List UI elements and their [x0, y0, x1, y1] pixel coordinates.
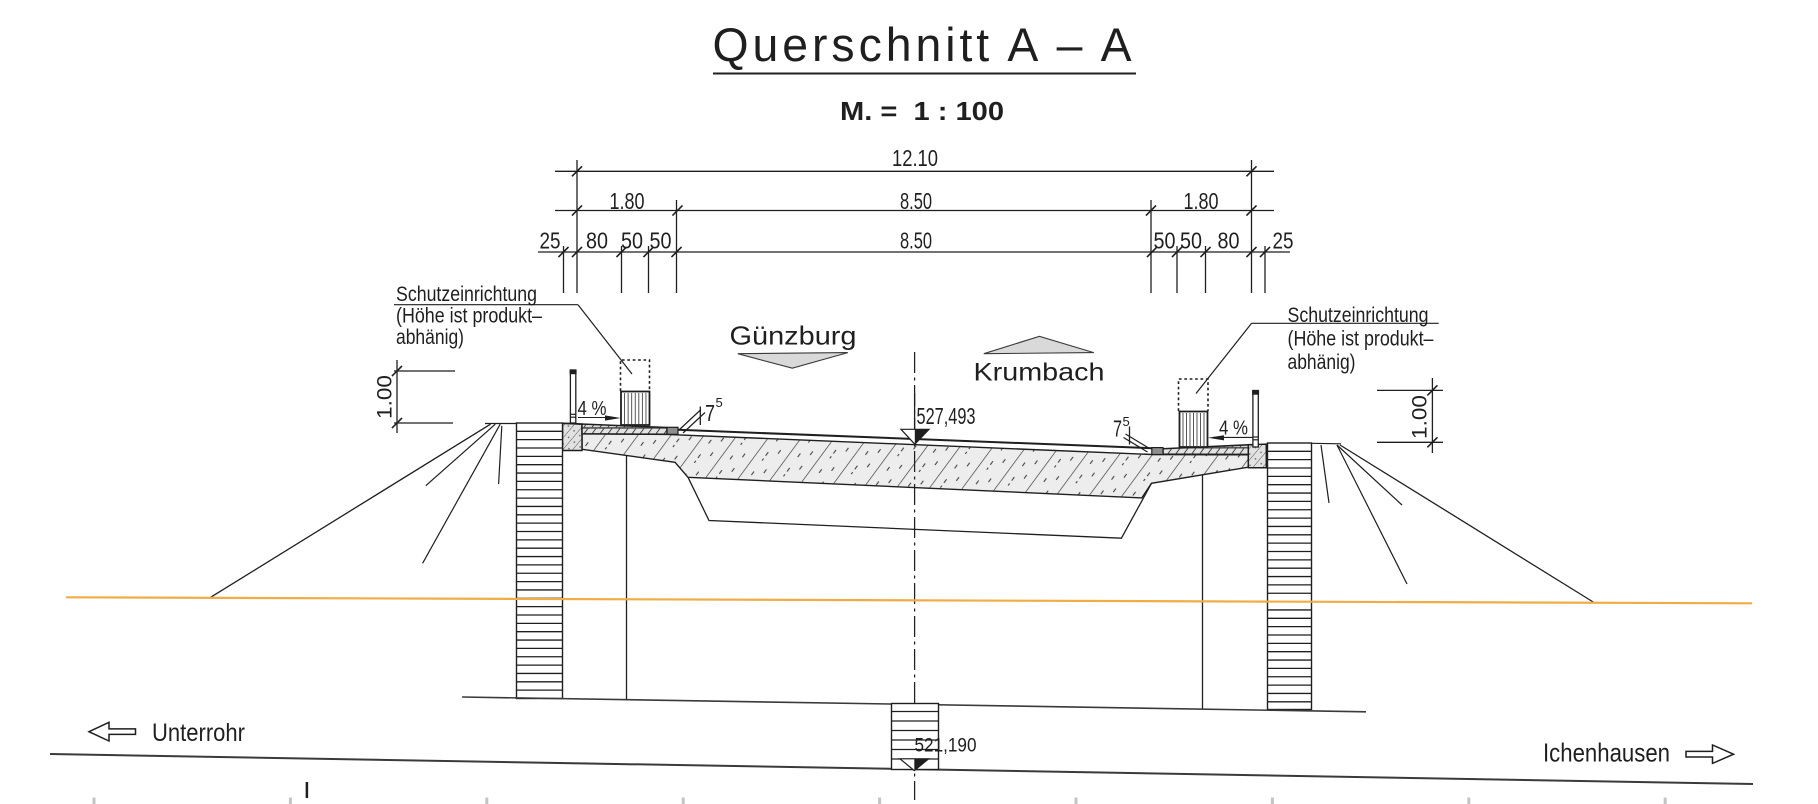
svg-text:25: 25: [540, 228, 561, 254]
svg-text:50: 50: [650, 228, 672, 254]
svg-text:Krumbach: Krumbach: [974, 359, 1105, 387]
svg-text:50: 50: [1180, 228, 1202, 254]
svg-text:12.10: 12.10: [892, 145, 938, 171]
svg-text:80: 80: [1218, 228, 1240, 254]
svg-text:50: 50: [1154, 228, 1176, 254]
svg-text:80: 80: [586, 228, 608, 254]
svg-text:1.00: 1.00: [373, 375, 397, 419]
svg-text:1.00: 1.00: [1408, 395, 1432, 439]
svg-text:Günzburg: Günzburg: [730, 321, 857, 351]
svg-text:7: 7: [705, 400, 715, 426]
svg-text:8.50: 8.50: [900, 188, 932, 214]
svg-text:abhänig): abhänig): [1288, 351, 1356, 374]
svg-text:50: 50: [621, 228, 643, 254]
svg-text:Unterrohr: Unterrohr: [152, 719, 245, 747]
svg-text:527,493: 527,493: [917, 403, 976, 429]
svg-text:abhänig): abhänig): [396, 326, 464, 349]
svg-text:Ichenhausen: Ichenhausen: [1543, 738, 1670, 768]
svg-text:1.80: 1.80: [610, 188, 645, 214]
svg-text:5: 5: [1123, 414, 1130, 429]
svg-text:Schutzeinrichtung: Schutzeinrichtung: [396, 283, 537, 306]
svg-text:521,190: 521,190: [915, 735, 977, 757]
svg-text:8.50: 8.50: [900, 228, 932, 254]
svg-text:25: 25: [1273, 228, 1294, 254]
svg-text:7: 7: [1113, 416, 1122, 442]
svg-text:5: 5: [716, 395, 723, 410]
svg-text:M. = 1 : 100: M. = 1 : 100: [840, 96, 1004, 126]
svg-text:Querschnitt A – A: Querschnitt A – A: [713, 18, 1136, 71]
svg-text:4 %: 4 %: [578, 398, 607, 420]
svg-text:(Höhe ist produkt–: (Höhe ist produkt–: [396, 305, 542, 328]
svg-text:1.80: 1.80: [1184, 188, 1219, 214]
svg-text:(Höhe ist produkt–: (Höhe ist produkt–: [1288, 328, 1434, 351]
